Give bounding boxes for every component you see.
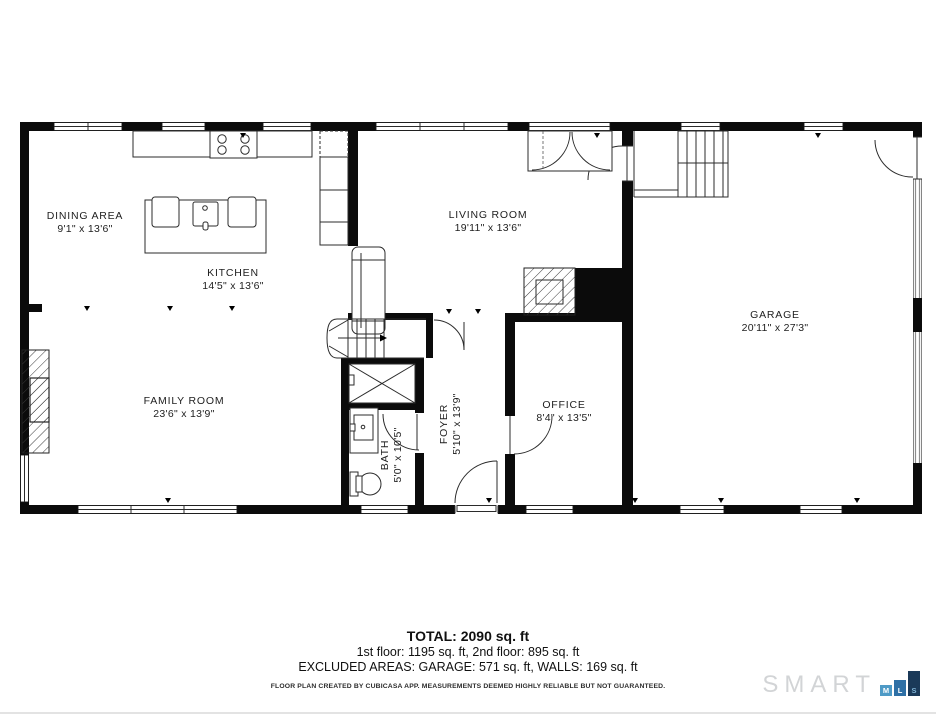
room-label-garage: GARAGE 20'11" x 27'3" <box>742 309 809 335</box>
room-label-living: LIVING ROOM 19'11" x 13'6" <box>449 209 528 235</box>
room-dims: 9'1" x 13'6" <box>47 223 123 236</box>
room-label-office: OFFICE 8'4" x 13'5" <box>536 399 591 425</box>
room-dims: 5'10" x 13'9" <box>451 393 464 455</box>
room-name: KITCHEN <box>202 267 264 280</box>
garage-stairs <box>634 131 728 197</box>
kitchen-island <box>145 197 266 253</box>
smart-mls-logo: SMART M L S <box>762 671 920 696</box>
foyer-opening <box>434 320 464 350</box>
room-name: GARAGE <box>742 309 809 322</box>
room-label-dining: DINING AREA 9'1" x 13'6" <box>47 210 123 236</box>
room-dims: 8'4" x 13'5" <box>536 412 591 425</box>
room-dims: 19'11" x 13'6" <box>449 222 528 235</box>
shower-area <box>349 364 415 403</box>
smart-wordmark: SMART <box>762 674 876 696</box>
room-name: DINING AREA <box>47 210 123 223</box>
room-dims: 23'6" x 13'9" <box>144 408 225 421</box>
family-room-fireplace <box>22 350 49 453</box>
room-dims: 14'5" x 13'6" <box>202 280 264 293</box>
mls-bar-s: S <box>908 671 920 696</box>
room-name: BATH <box>379 427 392 482</box>
toilet <box>350 472 381 496</box>
floor-areas-text: 1st floor: 1195 sq. ft, 2nd floor: 895 s… <box>0 645 936 659</box>
bath-vanity <box>350 408 378 453</box>
bath-door <box>414 413 425 453</box>
floor-plan-drawing <box>0 0 936 714</box>
entry-closet <box>528 131 612 171</box>
stove <box>210 131 257 158</box>
room-label-kitchen: KITCHEN 14'5" x 13'6" <box>202 267 264 293</box>
total-area-text: TOTAL: 2090 sq. ft <box>0 628 936 644</box>
mls-bar-l: L <box>894 680 906 696</box>
living-room-fireplace <box>524 268 575 315</box>
room-dims: 5'0" x 10'5" <box>392 427 405 482</box>
doors <box>383 137 923 515</box>
room-name: LIVING ROOM <box>449 209 528 222</box>
room-name: FOYER <box>438 393 451 455</box>
room-label-family: FAMILY ROOM 23'6" x 13'9" <box>144 395 225 421</box>
room-name: FAMILY ROOM <box>144 395 225 408</box>
room-dims: 20'11" x 27'3" <box>742 322 809 335</box>
room-label-bath: BATH 5'0" x 10'5" <box>379 427 405 482</box>
mls-bar-m: M <box>880 685 892 696</box>
room-label-foyer: FOYER 5'10" x 13'9" <box>438 393 464 455</box>
floor-plan-page: DINING AREA 9'1" x 13'6" KITCHEN 14'5" x… <box>0 0 936 714</box>
mls-bars: M L S <box>880 671 920 696</box>
room-name: OFFICE <box>536 399 591 412</box>
